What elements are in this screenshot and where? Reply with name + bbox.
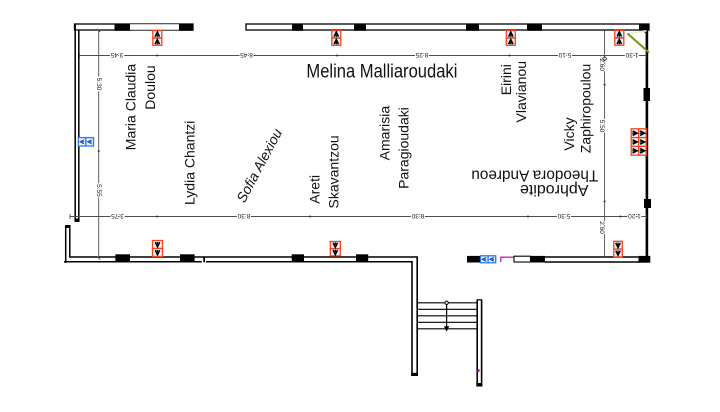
svg-text:Doulou: Doulou [142,65,158,109]
svg-text:Lydia Chantzi: Lydia Chantzi [182,121,198,205]
svg-text:Melina Malliaroudaki: Melina Malliaroudaki [306,62,457,83]
svg-text:Eirini: Eirini [498,64,514,95]
svg-text:5.50: 5.50 [598,120,605,133]
svg-text:5.30: 5.30 [557,212,570,219]
svg-text:Zaphiropoulou: Zaphiropoulou [578,64,594,154]
svg-text:2.60: 2.60 [598,221,605,234]
svg-text:5.55: 5.55 [95,184,102,197]
svg-text:1.30: 1.30 [625,51,638,58]
svg-text:Theodora Andreou: Theodora Andreou [471,167,598,184]
svg-text:Vicky: Vicky [561,117,577,150]
svg-text:5.30: 5.30 [95,78,102,91]
svg-text:Maria Claudia: Maria Claudia [123,64,139,151]
svg-text:Vlavianou: Vlavianou [513,61,529,123]
svg-text:1.20: 1.20 [628,212,641,219]
svg-text:5.10: 5.10 [558,51,571,58]
svg-text:8.25: 8.25 [415,51,428,58]
svg-text:Skavantzou: Skavantzou [326,135,342,208]
svg-text:8.45: 8.45 [240,51,253,58]
svg-text:3.75: 3.75 [111,212,124,219]
svg-text:Amarisia: Amarisia [377,106,393,161]
svg-text:8.30: 8.30 [237,212,250,219]
svg-text:8.30: 8.30 [411,212,424,219]
svg-text:Paragioudaki: Paragioudaki [396,107,412,189]
svg-text:3.45: 3.45 [110,51,123,58]
svg-text:Areti: Areti [306,175,322,204]
